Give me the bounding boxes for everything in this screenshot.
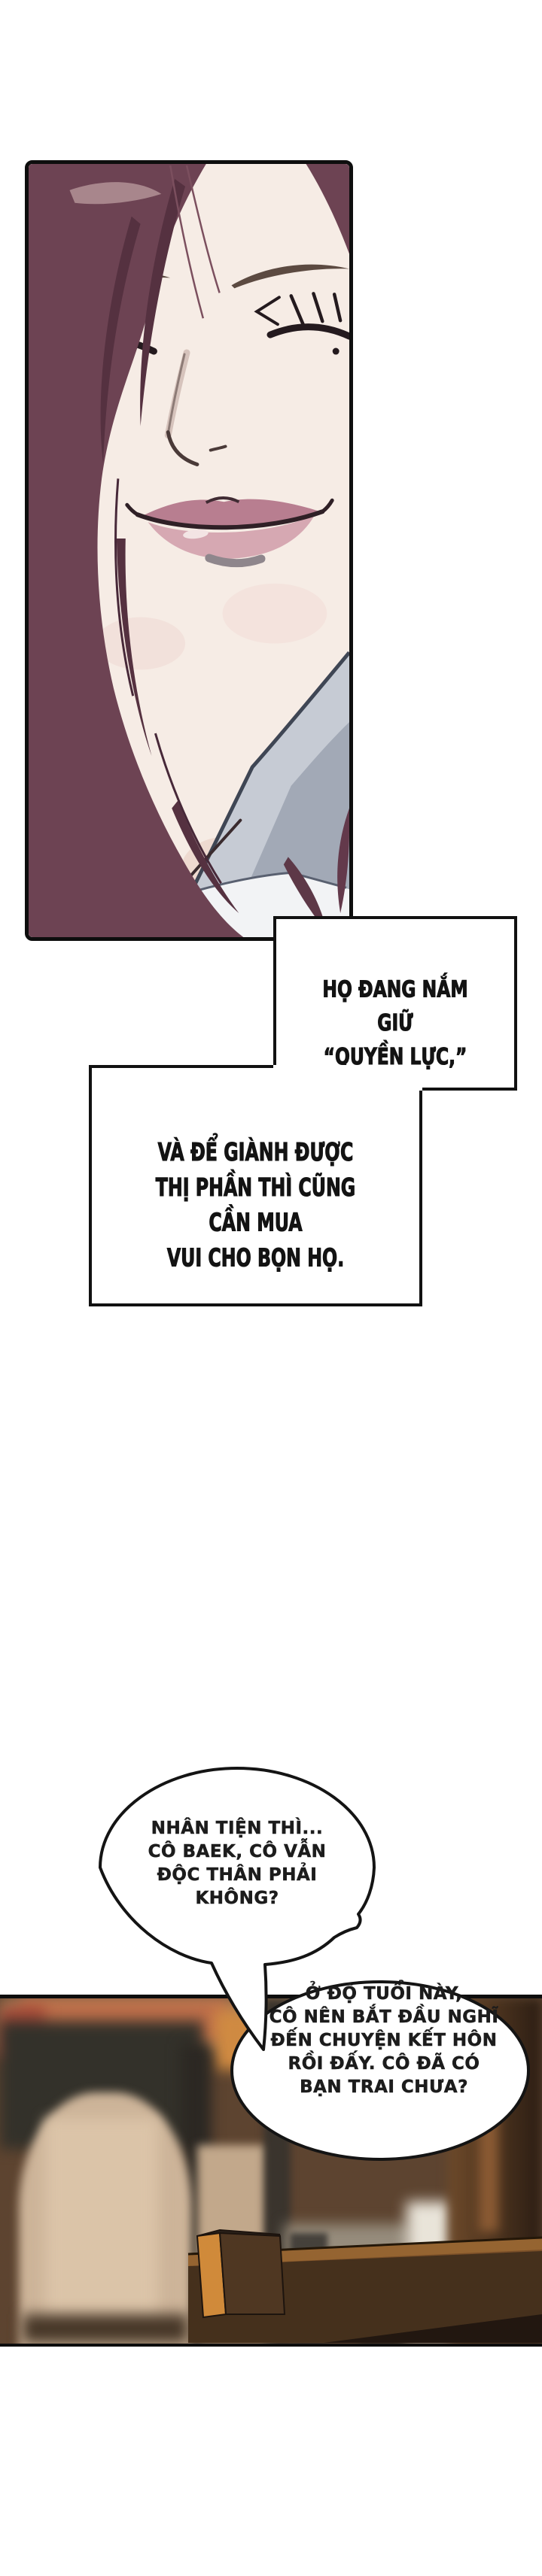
caption-line: HỌ ĐANG NẮM GIỮ <box>303 973 488 1041</box>
bubble-line: BẠN TRAI CHƯA? <box>267 2076 501 2099</box>
bubble-line: ĐẾN CHUYỆN KẾT HÔN <box>267 2029 501 2053</box>
bubble-line: RỒI ĐẤY. CÔ ĐÃ CÓ <box>267 2053 501 2076</box>
beauty-mark <box>333 348 340 355</box>
caption-line: THỊ PHẦN THÌ CŨNG CẦN MUA <box>135 1170 377 1240</box>
menu-stand <box>197 2230 285 2317</box>
portrait-illustration <box>29 164 349 937</box>
speech-bubble-1-text: NHÂN TIỆN THÌ... CÔ BAEK, CÔ VẪN ĐỘC THÂ… <box>124 1817 350 1910</box>
panel-portrait <box>25 160 353 941</box>
speech-bubble-2-text: Ở ĐỘ TUỔI NÀY, CÔ NÊN BẮT ĐẦU NGHĨ ĐẾN C… <box>267 1983 501 2099</box>
bubble-line: KHÔNG? <box>124 1887 350 1910</box>
comic-page: HỌ ĐANG NẮM GIỮ “QUYỀN LỰC,” VÀ ĐỂ GIÀNH… <box>0 0 542 2576</box>
caption-line: VUI CHO BỌN HỌ. <box>135 1240 377 1276</box>
bubble-line: NHÂN TIỆN THÌ... <box>124 1817 350 1840</box>
caption-line: VÀ ĐỂ GIÀNH ĐƯỢC <box>135 1134 377 1170</box>
bubble-line: CÔ NÊN BẮT ĐẦU NGHĨ <box>267 2006 501 2029</box>
bubble-line: CÔ BAEK, CÔ VẪN <box>124 1840 350 1864</box>
bubble-line: Ở ĐỘ TUỔI NÀY, <box>267 1983 501 2006</box>
caption-boxes-join-patch <box>273 1065 422 1091</box>
caption-box-1-text: HỌ ĐANG NẮM GIỮ “QUYỀN LỰC,” <box>303 973 488 1075</box>
caption-box-2: VÀ ĐỂ GIÀNH ĐƯỢC THỊ PHẦN THÌ CŨNG CẦN M… <box>89 1065 422 1306</box>
bubble-line: ĐỘC THÂN PHẢI <box>124 1864 350 1887</box>
caption-box-2-text: VÀ ĐỂ GIÀNH ĐƯỢC THỊ PHẦN THÌ CŨNG CẦN M… <box>135 1134 377 1276</box>
